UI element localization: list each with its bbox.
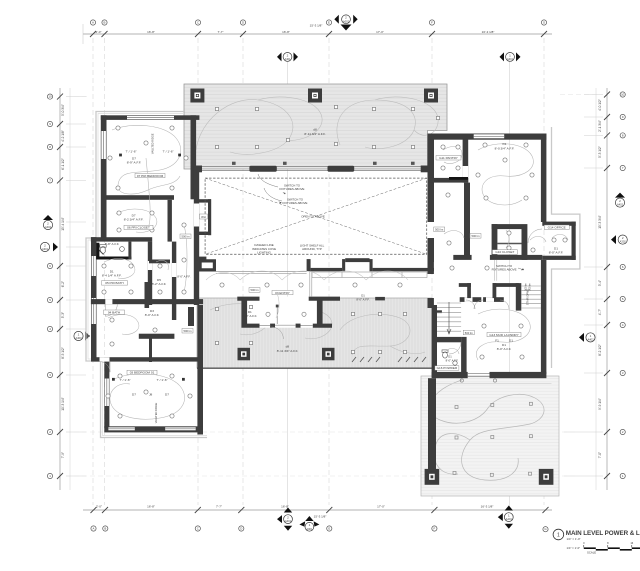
svg-text:8'-2" A.F.F.: 8'-2" A.F.F. (152, 282, 167, 286)
svg-text:8'-11 3/4" A.F.F.: 8'-11 3/4" A.F.F. (277, 349, 298, 353)
svg-text:G11 PANTRY: G11 PANTRY (439, 156, 458, 160)
svg-text:4'-0 1/2": 4'-0 1/2" (598, 99, 602, 111)
svg-text:7' / 1'-6": 7' / 1'-6" (162, 150, 173, 154)
svg-text:SCALE: SCALE (587, 551, 596, 555)
svg-text:8'-0" A.F.F.: 8'-0" A.F.F. (177, 275, 190, 279)
svg-text:4'-2 1/8": 4'-2 1/8" (61, 130, 65, 142)
svg-text:8'-0" A.F.F.: 8'-0" A.F.F. (549, 250, 564, 254)
svg-text:FIXTURES ABOVE: FIXTURES ABOVE (492, 268, 517, 272)
svg-text:A402: A402 (45, 225, 52, 229)
svg-text:A002: A002 (343, 19, 350, 23)
svg-text:B: B (104, 21, 106, 25)
svg-text:500 lm: 500 lm (471, 234, 480, 238)
svg-text:7' / 1'-6": 7' / 1'-6" (156, 378, 167, 382)
svg-text:A402: A402 (587, 337, 594, 341)
svg-text:04 BATH: 04 BATH (108, 310, 120, 314)
svg-text:VAULTED RIDGE: VAULTED RIDGE (151, 133, 155, 154)
svg-text:03 BEDROOM 01: 03 BEDROOM 01 (130, 371, 155, 375)
svg-text:8'-11 3/4" A.F.F.: 8'-11 3/4" A.F.F. (304, 132, 325, 136)
svg-text:D7: D7 (165, 393, 169, 397)
svg-text:8'-9" A.F.F.: 8'-9" A.F.F. (127, 161, 142, 165)
svg-text:16'-3 1/8": 16'-3 1/8" (481, 505, 494, 509)
svg-text:6'-2": 6'-2" (61, 281, 65, 287)
svg-text:d8: d8 (313, 127, 317, 131)
svg-text:7'-9": 7'-9" (61, 452, 65, 458)
svg-text:A302: A302 (620, 240, 627, 244)
svg-text:d8: d8 (286, 345, 290, 349)
svg-text:16: 16 (630, 541, 633, 545)
svg-text:7' / 1'-6": 7' / 1'-6" (125, 150, 136, 154)
svg-text:2'-0": 2'-0" (96, 30, 102, 34)
svg-text:500 lm: 500 lm (183, 329, 192, 333)
svg-text:15'-3 1/8": 15'-3 1/8" (314, 515, 327, 519)
svg-text:8'-0 3/4" A.F.F.: 8'-0 3/4" A.F.F. (495, 147, 515, 151)
svg-text:10: 10 (48, 95, 52, 99)
svg-text:A402: A402 (617, 203, 624, 207)
svg-text:8'-0" A.F.F.: 8'-0" A.F.F. (145, 313, 160, 317)
svg-text:FIXTURES ABOVE: FIXTURES ABOVE (283, 201, 308, 205)
svg-text:4'-7": 4'-7" (598, 309, 602, 315)
svg-text:15'-3 1/8": 15'-3 1/8" (310, 24, 323, 28)
svg-text:G16 POWDER: G16 POWDER (437, 366, 458, 370)
svg-text:1: 1 (557, 532, 560, 538)
svg-text:5'-3 1/2": 5'-3 1/2" (598, 146, 602, 158)
svg-text:7'-7": 7'-7" (216, 505, 222, 509)
svg-text:10: 10 (621, 93, 625, 97)
svg-text:E: E (328, 21, 330, 25)
svg-text:500 lm: 500 lm (525, 283, 528, 291)
svg-text:A301: A301 (42, 247, 49, 251)
svg-text:2'-0": 2'-0" (96, 505, 102, 509)
svg-text:3'-4": 3'-4" (598, 280, 602, 286)
svg-text:8'-0" A.F.F.: 8'-0" A.F.F. (243, 314, 258, 318)
svg-text:8: 8 (607, 541, 609, 545)
svg-text:05 PRI BATH: 05 PRI BATH (105, 281, 123, 285)
svg-text:16'-3 1/8": 16'-3 1/8" (482, 30, 495, 34)
svg-text:0: 0 (583, 541, 585, 545)
svg-text:8'-0" A.F.F.: 8'-0" A.F.F. (446, 359, 459, 363)
svg-text:OPEN TO ABOVE: OPEN TO ABOVE (301, 215, 325, 219)
svg-text:A401: A401 (284, 57, 291, 61)
svg-text:D1: D1 (448, 355, 452, 359)
svg-text:C: C (197, 527, 199, 531)
svg-text:D1: D1 (503, 142, 507, 146)
svg-text:D7: D7 (132, 393, 136, 397)
svg-text:C: C (197, 21, 199, 25)
svg-text:7'-7": 7'-7" (218, 30, 224, 34)
svg-text:G13 MUD LAUNDRY: G13 MUD LAUNDRY (489, 333, 518, 337)
svg-text:D: D (242, 21, 244, 25)
svg-text:A001: A001 (306, 527, 313, 531)
svg-text:D1: D1 (509, 338, 513, 342)
svg-text:8'-5 1/2": 8'-5 1/2" (61, 347, 65, 359)
svg-text:9'-9 1/4": 9'-9 1/4" (598, 398, 602, 410)
svg-text:10'-3 1/4": 10'-3 1/4" (61, 397, 65, 410)
svg-text:MAIN LEVEL POWER & LIG: MAIN LEVEL POWER & LIG (566, 530, 640, 537)
svg-text:J8: J8 (149, 393, 153, 397)
svg-text:7'-0": 7'-0" (598, 452, 602, 458)
svg-text:16'-8": 16'-8" (147, 30, 155, 34)
svg-text:5'-3": 5'-3" (61, 312, 65, 318)
svg-text:1/4" = 1'-0": 1/4" = 1'-0" (567, 537, 581, 541)
svg-text:06 PRI CLOSET: 06 PRI CLOSET (127, 226, 150, 230)
svg-text:5'-0 3/4": 5'-0 3/4" (61, 104, 65, 116)
svg-text:17'-0": 17'-0" (376, 30, 384, 34)
svg-text:WH: WH (201, 215, 206, 219)
svg-text:8'-2 1/2": 8'-2 1/2" (598, 344, 602, 356)
svg-text:A: A (93, 527, 95, 531)
svg-text:D: D (240, 527, 242, 531)
svg-text:AROUND, TYP: AROUND, TYP (302, 247, 322, 251)
svg-text:16'-8": 16'-8" (282, 30, 290, 34)
svg-text:7' / 1'-6": 7' / 1'-6" (119, 378, 130, 382)
svg-text:17'-0": 17'-0" (377, 505, 385, 509)
svg-text:15'-3 3/4": 15'-3 3/4" (598, 215, 602, 228)
svg-text:F: F (434, 527, 436, 531)
svg-text:15'-4 1/4": 15'-4 1/4" (61, 217, 65, 230)
svg-text:500 lm: 500 lm (181, 235, 190, 239)
svg-text:LIGHTING: LIGHTING (257, 250, 271, 254)
svg-text:FIXTURES ABOVE: FIXTURES ABOVE (280, 187, 305, 191)
svg-text:A401: A401 (285, 519, 292, 523)
svg-text:07 PRI BEDROOM: 07 PRI BEDROOM (137, 174, 164, 178)
svg-text:E: E (328, 527, 330, 531)
svg-text:500 lm: 500 lm (465, 331, 474, 335)
svg-text:G14 OFFICE: G14 OFFICE (548, 225, 566, 229)
svg-text:8'-0" A.F.F.: 8'-0" A.F.F. (497, 347, 512, 351)
svg-text:8'-2 3/4" A.F.F.: 8'-2 3/4" A.F.F. (124, 218, 144, 222)
svg-text:16'-8": 16'-8" (147, 505, 155, 509)
svg-text:500 lm: 500 lm (435, 228, 444, 232)
svg-text:B: B (104, 527, 106, 531)
svg-text:8'-4 1/4" A.F.F.: 8'-4 1/4" A.F.F. (102, 273, 122, 277)
svg-text:2'-1 3/4": 2'-1 3/4" (598, 120, 602, 132)
svg-text:500 lm: 500 lm (250, 288, 259, 292)
svg-text:1/4" = 1'-0": 1/4" = 1'-0" (567, 546, 581, 550)
svg-text:A401: A401 (506, 517, 513, 521)
svg-text:A400: A400 (75, 336, 82, 340)
svg-text:A401: A401 (507, 57, 514, 61)
svg-text:A: A (92, 21, 94, 25)
svg-text:G10 CLOSET: G10 CLOSET (495, 250, 514, 254)
svg-text:F: F (431, 21, 433, 25)
svg-text:6'-1 1/2": 6'-1 1/2" (61, 158, 65, 170)
svg-text:8'-0" A.F.F.: 8'-0" A.F.F. (356, 297, 369, 301)
svg-text:500 lm: 500 lm (529, 283, 532, 291)
svg-text:8'-8" A.F.F.: 8'-8" A.F.F. (105, 242, 120, 246)
svg-text:F1: F1 (495, 338, 499, 342)
svg-text:03 ENTRY: 03 ENTRY (275, 291, 290, 295)
svg-text:VAULTED RIDGE: VAULTED RIDGE (154, 402, 158, 423)
